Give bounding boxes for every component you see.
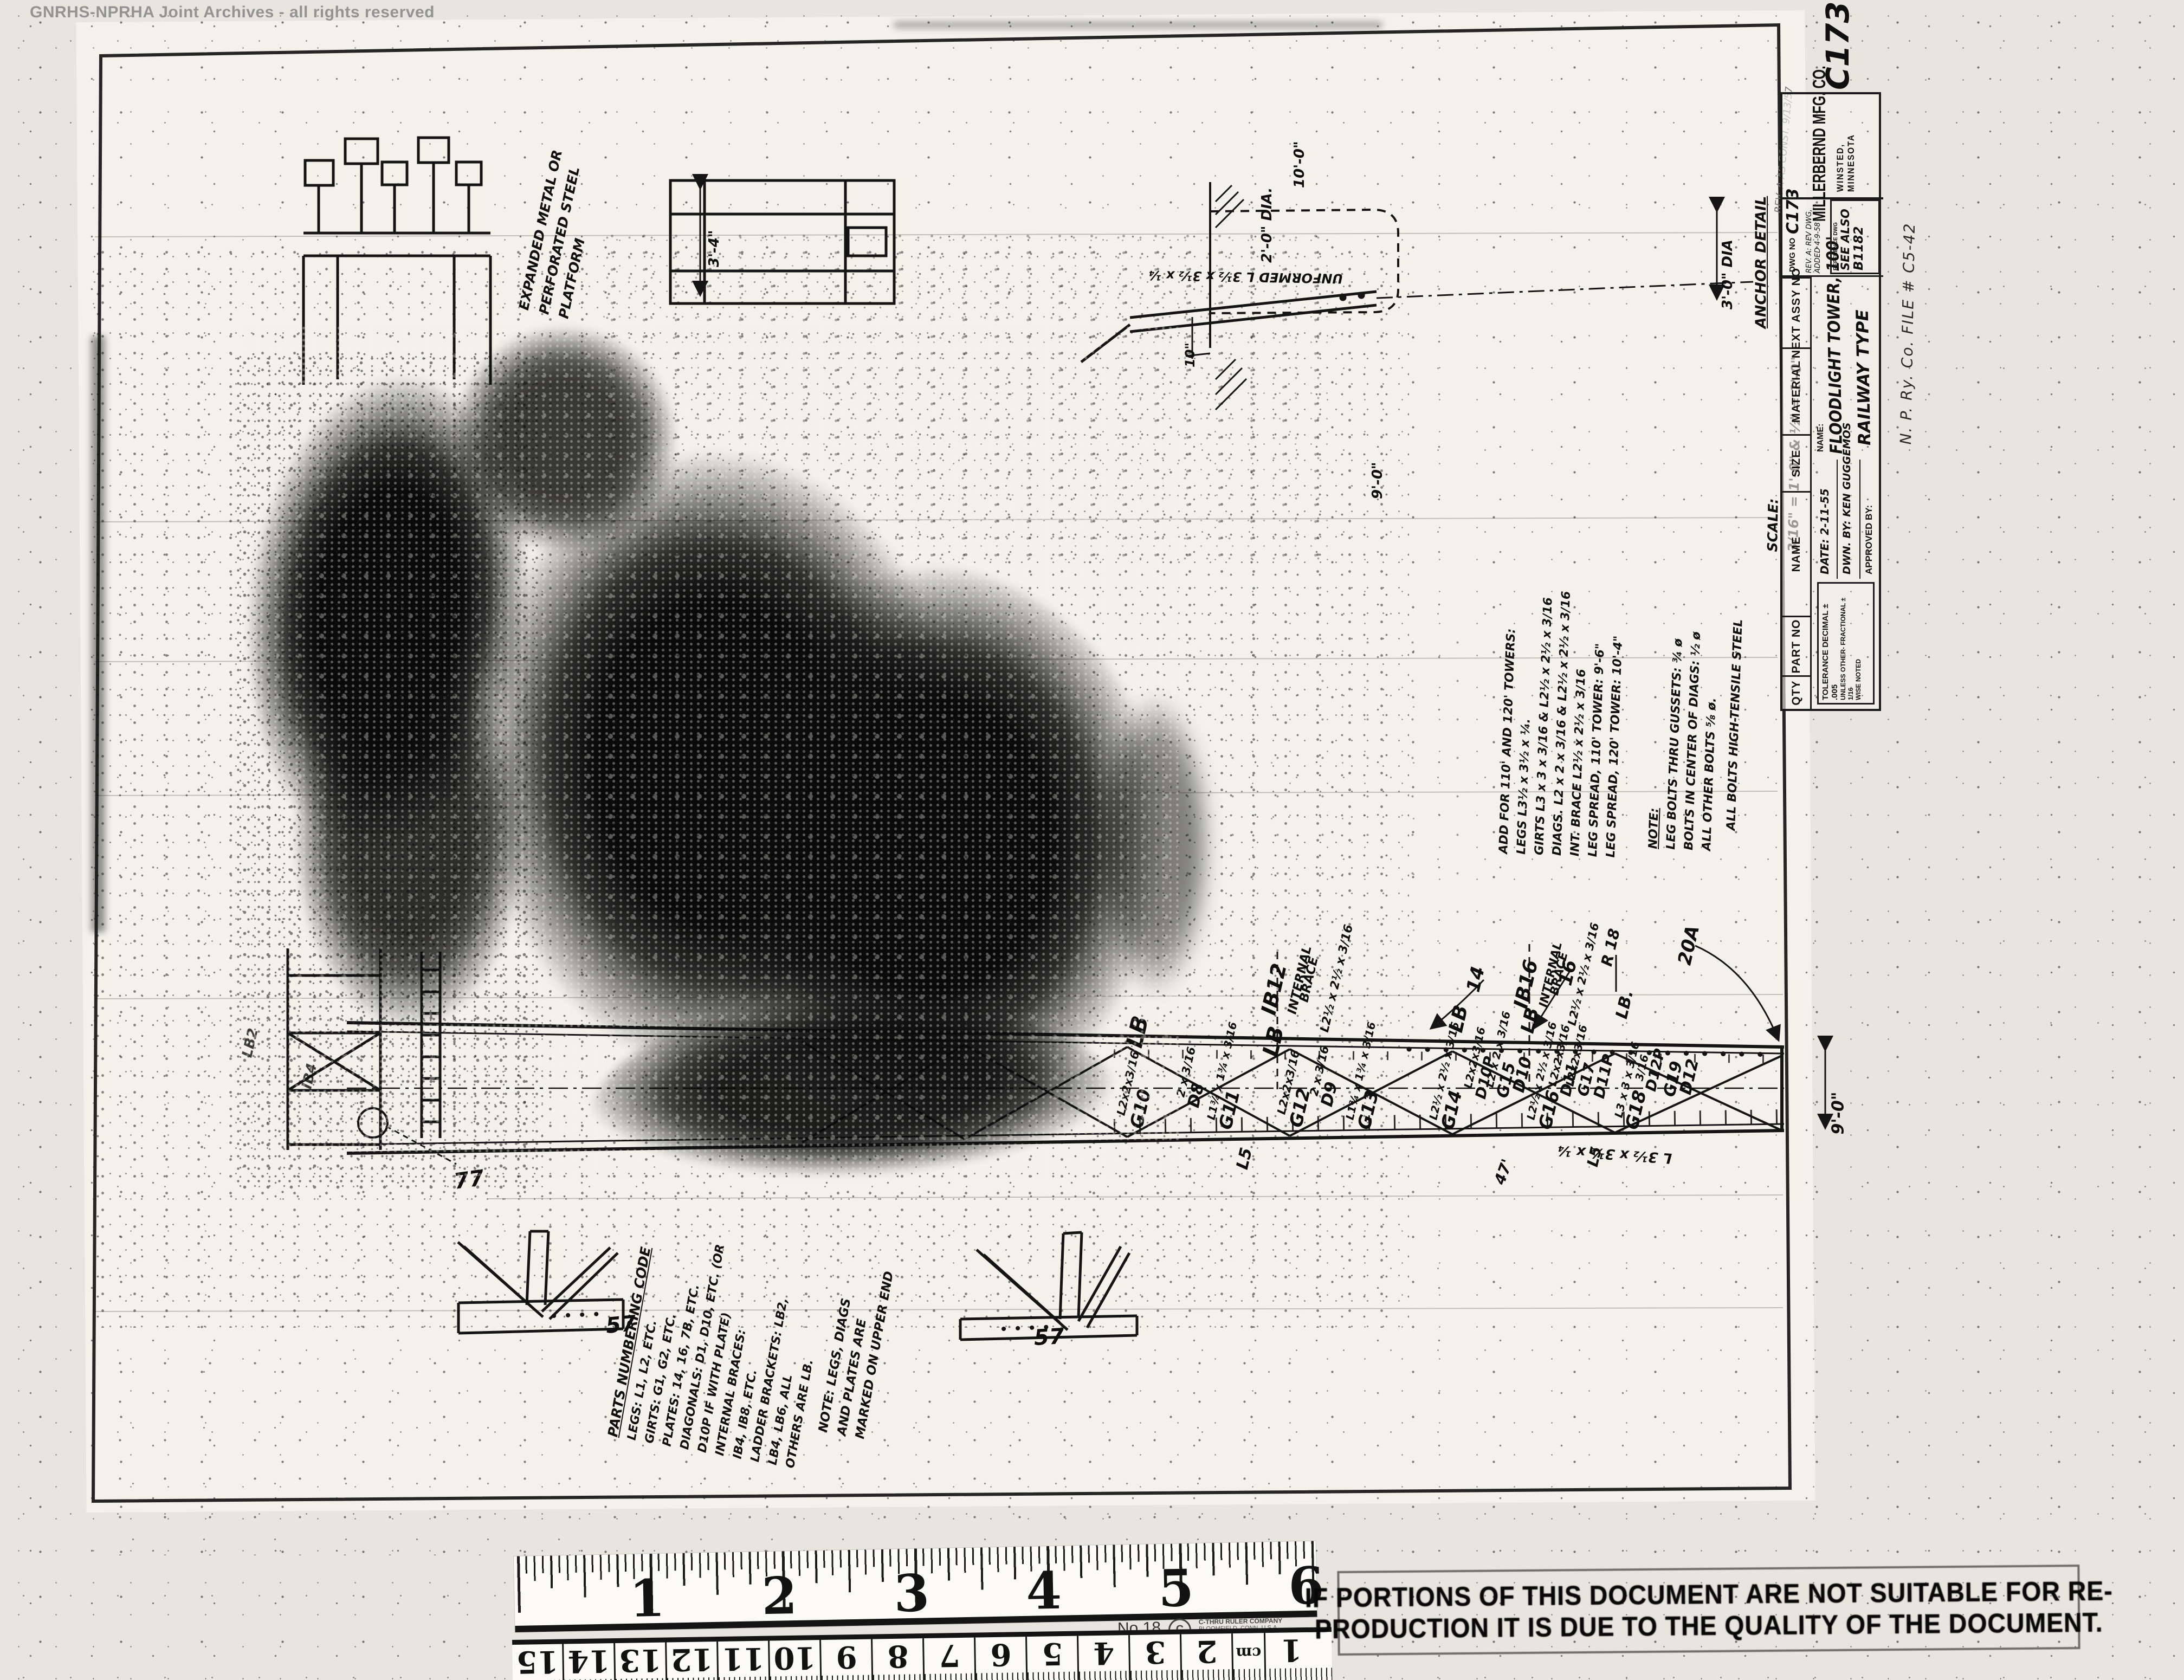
floodlight-fixtures [303,138,490,385]
sheet-number-handwritten: C173 [1814,1,1862,90]
header-name: NAME [1782,491,1812,616]
company-block: MILLERBERND MFG. CO. WINSTED, MINNESOTA [1782,90,1883,197]
ruler-number: 1 [629,1569,665,1629]
cm-number: 3 [1145,1637,1166,1668]
file-note: N. P. Ry. Co. FILE # C5-42 [1895,222,1921,444]
scanned-blueprint-page: { "watermark": "GNRHS-NPRHA Joint Archiv… [0,0,2184,1680]
part-label: 57 [605,1311,637,1339]
cm-unit: cm [1236,1645,1261,1660]
edge-smudge [894,22,1382,28]
reference-value: B1182 [1852,203,1866,270]
dim-label: 10" [1183,343,1198,367]
cm-cell: 9 [821,1639,874,1680]
header-size: SIZE [1782,434,1812,491]
reference-label: REFERENCE DWG [1833,203,1839,270]
cm-number: 15 [516,1646,559,1677]
cm-number: 10 [773,1642,816,1673]
dim-label: 3'-0" DIA [1720,240,1736,309]
scan-blob [1095,694,1214,997]
cm-number: 7 [939,1640,960,1671]
cm-cell: 13 [615,1643,668,1680]
tolerance-line: TOLERANCE DECIMAL ± .005 [1821,586,1839,700]
ruler-number: 4 [1025,1561,1062,1621]
cm-number: 2 [1196,1636,1218,1667]
add-towers-note: ADD FOR 110' AND 120' TOWERS: LEGS L3½ x… [1495,589,1629,858]
ruler-number: 5 [1158,1559,1194,1619]
platform-top-view [670,180,894,303]
title-block-headers: QTY PART NO NAME SIZE MATERIAL NEXT ASSY… [1782,277,1812,709]
cm-cell: 15 [512,1644,565,1680]
part-label: 57 [1033,1324,1065,1351]
ruler-number: 2 [761,1566,798,1626]
parts-numbering-note: PARTS NUMBERING CODE LEGS: L1, L2, ETC. … [603,1230,835,1469]
company-city: WINSTED, MINNESOTA [1835,95,1857,192]
cm-number: 1 [1281,1634,1302,1665]
archive-watermark: GNRHS-NPRHA Joint Archives - all rights … [30,3,435,22]
header-next-assy: NEXT ASSY NO [1782,277,1812,347]
cm-cell: 11 [718,1641,771,1680]
cm-number: 14 [567,1645,610,1676]
name-label: NAME: [1816,424,1826,452]
railway-file-note: N. P. Ry. Co. FILE # C5-42 [1895,222,1921,444]
cm-number: 13 [619,1645,662,1676]
quality-stamp: IF PORTIONS OF THIS DOCUMENT ARE NOT SUI… [1337,1565,2080,1656]
cm-number: 4 [1093,1638,1115,1669]
cm-number: 6 [990,1639,1012,1670]
cm-number: 11 [722,1643,765,1674]
ruler-number: 3 [893,1563,930,1624]
edge-smudge [91,336,105,932]
cm-cell: 14 [564,1643,616,1680]
cm-cell: 10 [770,1640,822,1680]
reference-value: SEE ALSO [1839,203,1852,270]
stamp-line: PRODUCTION IT IS DUE TO THE QUALITY OF T… [1315,1607,2103,1645]
title-block: QTY PART NO NAME SIZE MATERIAL NEXT ASSY… [1780,92,1881,711]
header-qty: QTY [1782,675,1812,709]
sheet-number: C173 [1814,1,1862,90]
cm-cell: 12 [667,1642,719,1680]
bolts-note: NOTE: LEG BOLTS THRU GUSSETS: ¾ ø BOLTS … [1644,630,1723,851]
reference-box: REFERENCE DWG SEE ALSO B1182 [1830,199,1880,274]
tolerance-line: UNLESS OTHER- FRACTIONAL ± 1/16 [1839,586,1855,700]
approved-by-field: APPROVED BY: [1864,505,1875,574]
cm-number: 5 [1042,1638,1063,1669]
tolerance-line: WISE NOTED [1855,586,1862,700]
anchor-detail-title: ANCHOR DETAIL [1750,196,1773,328]
scan-blob [293,639,526,1030]
drawing-name-2: RAILWAY TYPE [1853,309,1875,445]
cm-number: 9 [836,1642,857,1672]
header-part-no: PART NO [1782,616,1812,675]
cm-number: 8 [887,1641,909,1672]
anchor-detail-label: ANCHOR DETAIL [1750,196,1773,328]
dwg-no-label: DWG NO [1788,238,1797,272]
dim-label: 3'-4" [706,230,722,267]
dim-label: 9'-0" [1829,1091,1848,1134]
tolerance-box: TOLERANCE DECIMAL ± .005 UNLESS OTHER- F… [1817,582,1875,705]
header-material: MATERIAL [1782,347,1812,434]
dim-label: 2'-0" DIA. [1259,188,1275,263]
dim-label: 10'-0" [1291,141,1308,188]
part-label: 77 [453,1165,486,1194]
date-field: DATE: 2-11-55 [1818,488,1831,574]
dim-label: 9'-0" [1369,462,1386,499]
anchor-detail-sketch [1081,182,1753,410]
cm-number: 12 [670,1644,713,1675]
